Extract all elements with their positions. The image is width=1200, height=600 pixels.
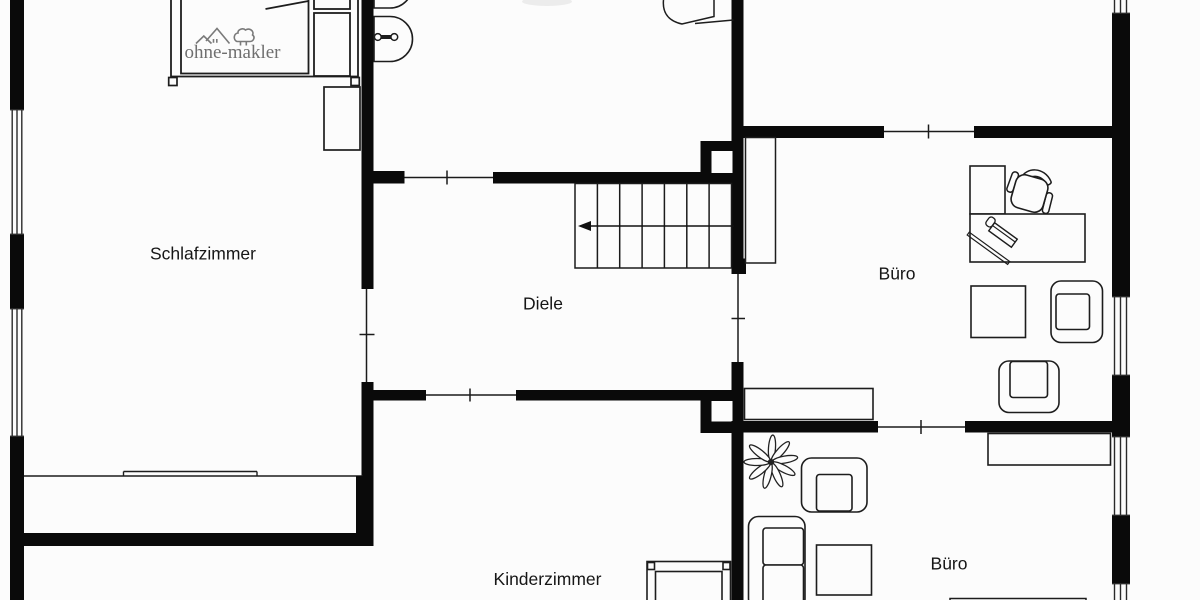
svg-text:Büro: Büro — [879, 264, 916, 284]
svg-text:ohne-makler: ohne-makler — [184, 42, 281, 63]
svg-text:Diele: Diele — [523, 294, 563, 314]
svg-text:Schlafzimmer: Schlafzimmer — [150, 244, 256, 264]
svg-text:Kinderzimmer: Kinderzimmer — [494, 569, 602, 589]
svg-text:Büro: Büro — [931, 554, 968, 574]
